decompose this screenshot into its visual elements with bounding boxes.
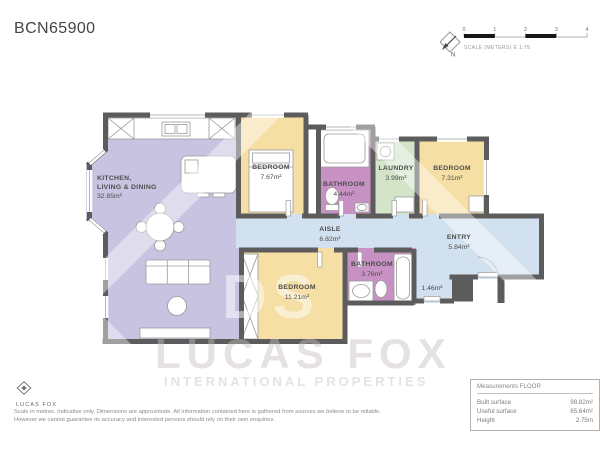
laundry-label: LAUNDRY bbox=[378, 165, 413, 172]
entry-door-leaf bbox=[478, 273, 498, 278]
laundry-counter bbox=[395, 197, 414, 212]
kitchen-label: KITCHEN, bbox=[97, 175, 132, 182]
bathroom-sink bbox=[355, 203, 369, 212]
measurement-value: 85.64m² bbox=[570, 407, 593, 416]
kitchen-area: 32.85m² bbox=[97, 193, 123, 200]
door-leaf bbox=[286, 201, 291, 217]
kitchen-counter bbox=[108, 118, 235, 139]
entry-area: 5.84m² bbox=[448, 244, 470, 251]
vanity-sink bbox=[349, 281, 373, 302]
bedroom3-area: 11.21m² bbox=[285, 294, 310, 301]
bedroom1-label: BEDROOM bbox=[252, 164, 290, 171]
floorplan-page: BCN65900 N 0 1 2 3 4 SCALE (METERS) E 1:… bbox=[0, 0, 600, 450]
sofa bbox=[146, 260, 210, 284]
closet-area: 1.46m² bbox=[421, 285, 443, 292]
diamond-logo-icon bbox=[16, 381, 32, 395]
door-leaf bbox=[339, 201, 344, 217]
bedroom2-label: BEDROOM bbox=[433, 165, 471, 172]
measurement-value: 98.82m² bbox=[570, 398, 593, 407]
rug bbox=[140, 328, 210, 338]
wall-pillar bbox=[452, 275, 473, 302]
bedroom2-area: 7.31m² bbox=[441, 175, 463, 182]
measurement-label: Height bbox=[477, 416, 495, 425]
measurement-value: 2.75m bbox=[576, 416, 593, 425]
bathroom1-label: BATHROOM bbox=[323, 181, 365, 188]
measurement-label: Built surface bbox=[477, 398, 511, 407]
kitchen-label: LIVING & DINING bbox=[97, 184, 157, 191]
closet-unit bbox=[469, 196, 484, 212]
measurement-row: Built surface 98.82m² bbox=[477, 398, 593, 407]
measurement-label: Useful surface bbox=[477, 407, 517, 416]
bathroom1-area: 4.44m² bbox=[333, 191, 355, 198]
coffee-table bbox=[168, 297, 187, 316]
aisle-label: AISLE bbox=[319, 226, 341, 233]
bathroom2-area: 3.76m² bbox=[361, 271, 383, 278]
measurements-table: Measurements FLOOR Built surface 98.82m²… bbox=[470, 379, 600, 431]
laundry-area: 3.99m² bbox=[385, 175, 407, 182]
bedroom1-area: 7.67m² bbox=[260, 174, 282, 181]
bedroom3-label: BEDROOM bbox=[278, 284, 316, 291]
measurement-row: Height 2.75m bbox=[477, 416, 593, 425]
door-jamb bbox=[498, 277, 505, 303]
toilet bbox=[375, 281, 387, 298]
bathtub bbox=[394, 254, 412, 302]
bathroom2-label: BATHROOM bbox=[351, 261, 393, 268]
door-leaf bbox=[392, 201, 397, 217]
lucas-fox-logo: LUCAS FOX bbox=[16, 381, 62, 408]
aisle-area: 6.82m² bbox=[319, 236, 341, 243]
measurement-row: Useful surface 85.64m² bbox=[477, 407, 593, 416]
entry-label: ENTRY bbox=[447, 234, 471, 241]
door-leaf bbox=[424, 297, 440, 302]
measurements-title: Measurements FLOOR bbox=[477, 383, 593, 394]
